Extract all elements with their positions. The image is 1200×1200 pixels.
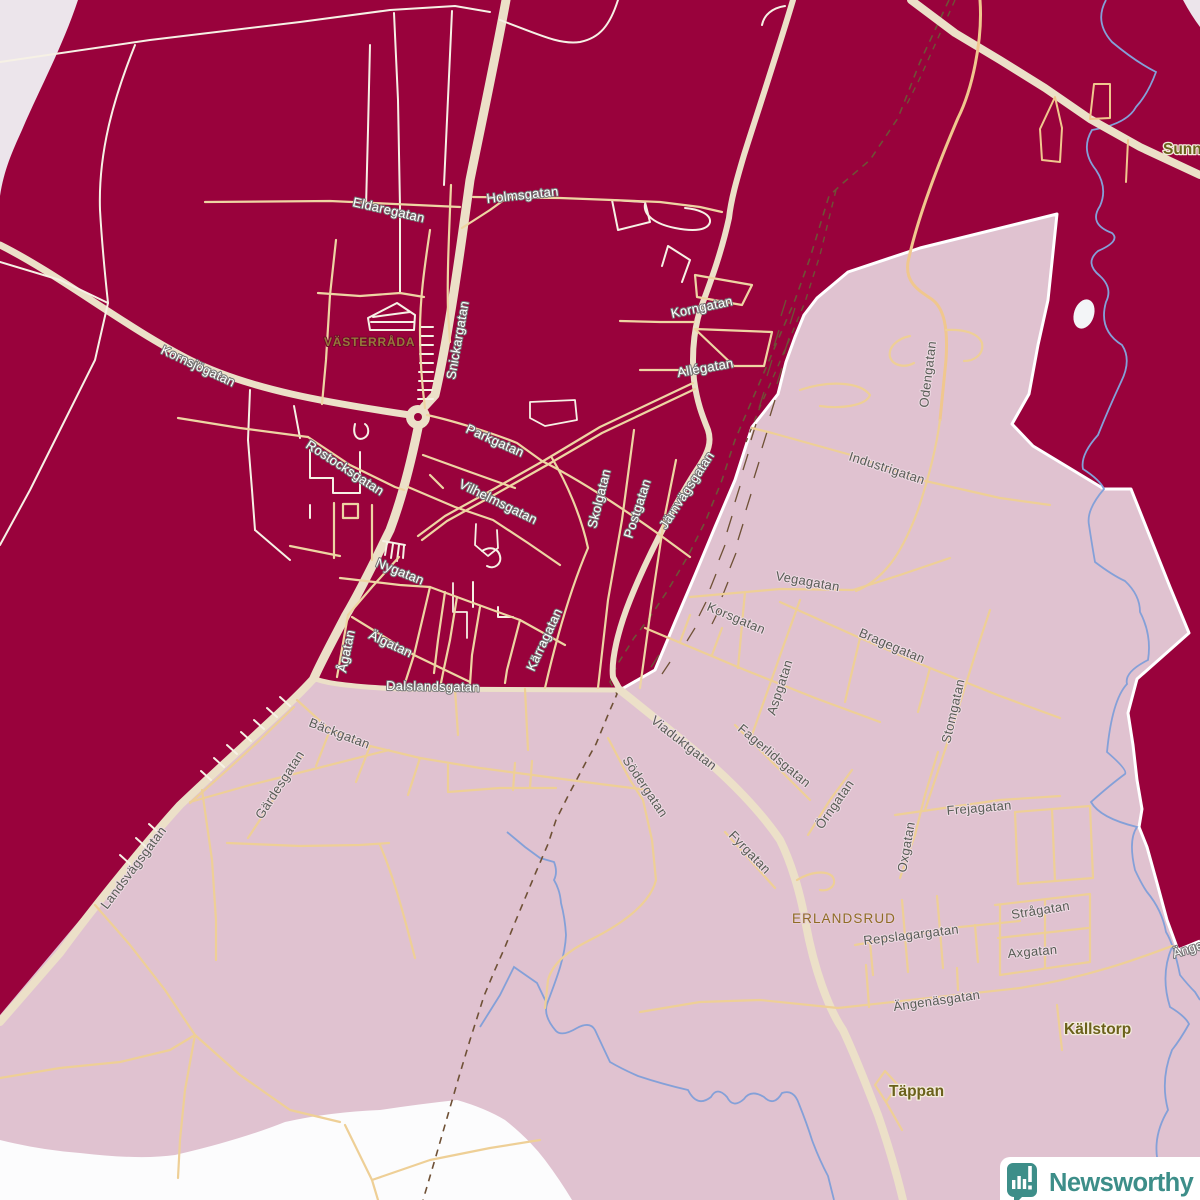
svg-text:Newsworthy: Newsworthy — [1049, 1169, 1195, 1197]
svg-text:Täppan: Täppan — [889, 1083, 944, 1100]
svg-text:Dalslandsgatan: Dalslandsgatan — [386, 678, 480, 695]
svg-text:Källstorp: Källstorp — [1064, 1021, 1131, 1038]
svg-text:Sunn: Sunn — [1163, 141, 1200, 158]
svg-text:ERLANDSRUD: ERLANDSRUD — [792, 911, 896, 926]
svg-text:VÄSTERRÅDA: VÄSTERRÅDA — [324, 334, 415, 349]
